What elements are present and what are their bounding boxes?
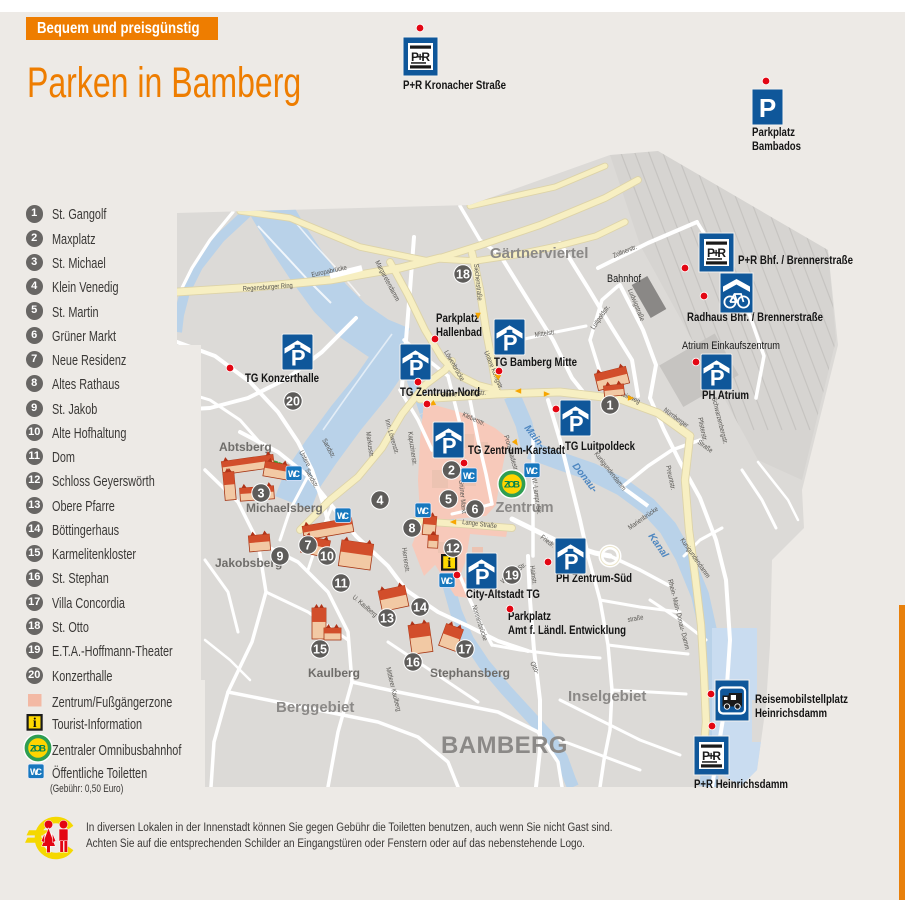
svg-text:BAMBERG: BAMBERG (441, 732, 568, 759)
svg-text:9: 9 (277, 549, 284, 563)
svg-text:Bahnhof: Bahnhof (607, 273, 642, 285)
svg-text:Michaelsberg: Michaelsberg (246, 501, 323, 515)
svg-text:PH Zentrum-Süd: PH Zentrum-Süd (556, 573, 632, 585)
svg-text:Parkplatz: Parkplatz (752, 127, 795, 139)
svg-text:Inselgebiet: Inselgebiet (568, 688, 646, 705)
svg-text:City-Altstadt TG: City-Altstadt TG (466, 589, 540, 601)
svg-text:P+R Kronacher Straße: P+R Kronacher Straße (403, 80, 506, 92)
svg-text:10: 10 (320, 549, 334, 563)
svg-text:Parkplatz: Parkplatz (508, 611, 551, 623)
svg-text:Zentrum: Zentrum (496, 500, 554, 516)
svg-text:Radhaus Bhf. / Brennerstraße: Radhaus Bhf. / Brennerstraße (687, 312, 823, 324)
svg-text:7: 7 (305, 538, 312, 552)
svg-text:6: 6 (472, 502, 479, 516)
svg-text:2: 2 (448, 463, 455, 477)
svg-text:TG Zentrum-Nord: TG Zentrum-Nord (400, 387, 480, 399)
svg-text:18: 18 (456, 267, 470, 281)
svg-text:1: 1 (607, 398, 614, 412)
svg-text:11: 11 (334, 576, 347, 590)
svg-text:Parkplatz: Parkplatz (436, 313, 479, 325)
svg-text:P+R Heinrichsdamm: P+R Heinrichsdamm (694, 779, 788, 791)
svg-text:15: 15 (313, 642, 327, 656)
svg-text:Abtsberg: Abtsberg (219, 440, 272, 454)
svg-text:Atrium Einkaufszentrum: Atrium Einkaufszentrum (682, 340, 780, 352)
svg-text:P+R Bhf. / Brennerstraße: P+R Bhf. / Brennerstraße (738, 255, 853, 267)
svg-text:PH Atrium: PH Atrium (702, 390, 749, 402)
svg-text:Amt f. Ländl. Entwicklung: Amt f. Ländl. Entwicklung (508, 625, 626, 637)
svg-text:20: 20 (286, 394, 300, 408)
svg-text:TG Bamberg Mitte: TG Bamberg Mitte (494, 357, 577, 369)
svg-text:TG Luitpoldeck: TG Luitpoldeck (565, 441, 635, 453)
svg-text:TG Konzerthalle: TG Konzerthalle (245, 373, 319, 385)
svg-text:Reisemobilstellplatz: Reisemobilstellplatz (755, 694, 848, 706)
svg-text:14: 14 (413, 600, 427, 614)
svg-text:TG Zentrum-Karstadt: TG Zentrum-Karstadt (468, 445, 565, 457)
svg-text:5: 5 (445, 492, 452, 506)
svg-text:17: 17 (458, 642, 472, 656)
svg-text:12: 12 (446, 541, 460, 555)
svg-text:8: 8 (409, 521, 416, 535)
svg-text:19: 19 (505, 568, 519, 582)
svg-text:Bambados: Bambados (752, 141, 801, 153)
svg-text:3: 3 (258, 486, 265, 500)
svg-text:Kaulberg: Kaulberg (308, 666, 360, 680)
svg-text:Heinrichsdamm: Heinrichsdamm (755, 708, 827, 720)
svg-text:Berggebiet: Berggebiet (276, 699, 354, 716)
svg-text:13: 13 (380, 611, 394, 625)
svg-text:16: 16 (406, 655, 420, 669)
svg-text:Stephansberg: Stephansberg (430, 666, 510, 680)
svg-text:Gärtnerviertel: Gärtnerviertel (490, 245, 588, 262)
svg-text:Hallenbad: Hallenbad (436, 327, 482, 339)
svg-text:4: 4 (377, 493, 384, 507)
